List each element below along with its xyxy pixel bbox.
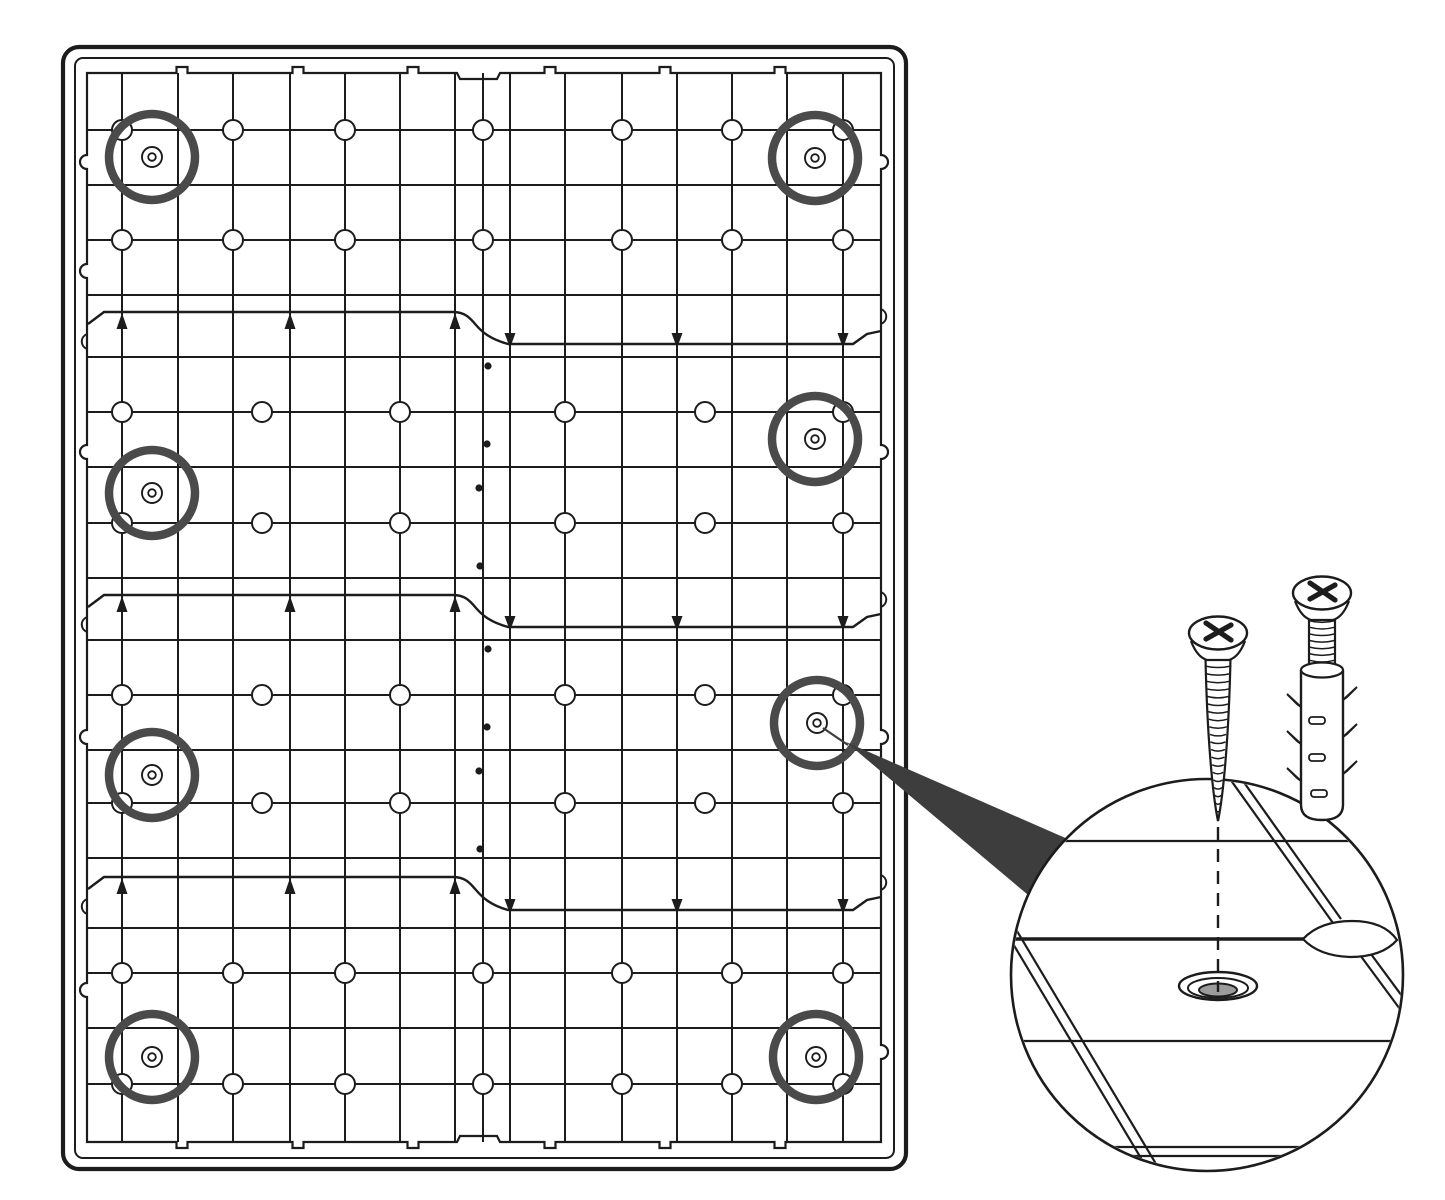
screw-and-wall-plug — [1287, 577, 1357, 821]
drainage-hole — [223, 1074, 243, 1094]
drainage-hole — [223, 120, 243, 140]
panel-mounting-diagram — [0, 0, 1445, 1200]
seam-dot — [483, 440, 490, 447]
drainage-hole — [252, 513, 272, 533]
plug-barb — [1287, 694, 1301, 707]
plug-barb — [1343, 724, 1357, 737]
drainage-hole — [223, 230, 243, 250]
drainage-hole — [473, 1074, 493, 1094]
screw-hole-symbol — [142, 147, 162, 167]
seam-dot — [484, 645, 491, 652]
seam-dot — [483, 723, 490, 730]
drainage-hole — [473, 120, 493, 140]
drainage-hole — [555, 793, 575, 813]
plug-barb — [1287, 731, 1301, 744]
seam-dot — [476, 562, 483, 569]
drainage-hole — [612, 963, 632, 983]
plug-slot — [1309, 754, 1325, 761]
drainage-hole — [722, 963, 742, 983]
drainage-hole — [833, 963, 853, 983]
plug-barb — [1287, 768, 1301, 781]
drainage-hole — [335, 963, 355, 983]
drainage-hole — [252, 402, 272, 422]
drainage-hole — [390, 793, 410, 813]
drainage-hole — [335, 120, 355, 140]
plug-top — [1301, 663, 1343, 678]
screw-hole-symbol — [806, 1047, 826, 1067]
plug-slot — [1311, 790, 1327, 797]
wall-plug-icon — [1287, 663, 1357, 821]
drainage-hole — [612, 230, 632, 250]
screw-hole-symbol — [142, 1047, 162, 1067]
drainage-hole — [612, 120, 632, 140]
drainage-hole — [695, 402, 715, 422]
drainage-hole — [390, 513, 410, 533]
drainage-hole — [112, 230, 132, 250]
drainage-hole — [695, 793, 715, 813]
drainage-hole — [335, 230, 355, 250]
drainage-hole — [612, 1074, 632, 1094]
seam-dot — [484, 362, 491, 369]
panel-outer-edge — [63, 47, 906, 1169]
panel-frame — [63, 47, 906, 1169]
drainage-hole — [223, 963, 243, 983]
drainage-hole — [722, 230, 742, 250]
plug-barb — [1343, 761, 1357, 774]
drainage-hole — [390, 402, 410, 422]
drainage-hole — [722, 120, 742, 140]
screw-hole-symbol — [805, 148, 825, 168]
drainage-hole — [112, 402, 132, 422]
drainage-hole — [473, 963, 493, 983]
drainage-hole — [695, 685, 715, 705]
seam-dot — [475, 767, 482, 774]
seam-dot — [476, 845, 483, 852]
drainage-hole — [555, 513, 575, 533]
drainage-hole — [722, 1074, 742, 1094]
drainage-hole — [833, 513, 853, 533]
drainage-hole — [112, 685, 132, 705]
plug-slot — [1309, 717, 1325, 724]
screw-hole-symbol — [142, 483, 162, 503]
drainage-hole — [112, 963, 132, 983]
drainage-hole — [555, 402, 575, 422]
drainage-hole — [252, 685, 272, 705]
drainage-hole — [390, 685, 410, 705]
drainage-hole — [833, 230, 853, 250]
drainage-hole — [473, 230, 493, 250]
drainage-hole — [833, 793, 853, 813]
drainage-hole — [252, 793, 272, 813]
drainage-hole — [335, 1074, 355, 1094]
seam-dot — [475, 484, 482, 491]
screw-hole-symbol — [805, 429, 825, 449]
plug-barb — [1343, 687, 1357, 700]
detail-view — [1003, 774, 1416, 1185]
drainage-hole — [695, 513, 715, 533]
illustration-canvas — [0, 0, 1445, 1200]
drainage-hole — [555, 685, 575, 705]
screw-hole-symbol — [142, 765, 162, 785]
